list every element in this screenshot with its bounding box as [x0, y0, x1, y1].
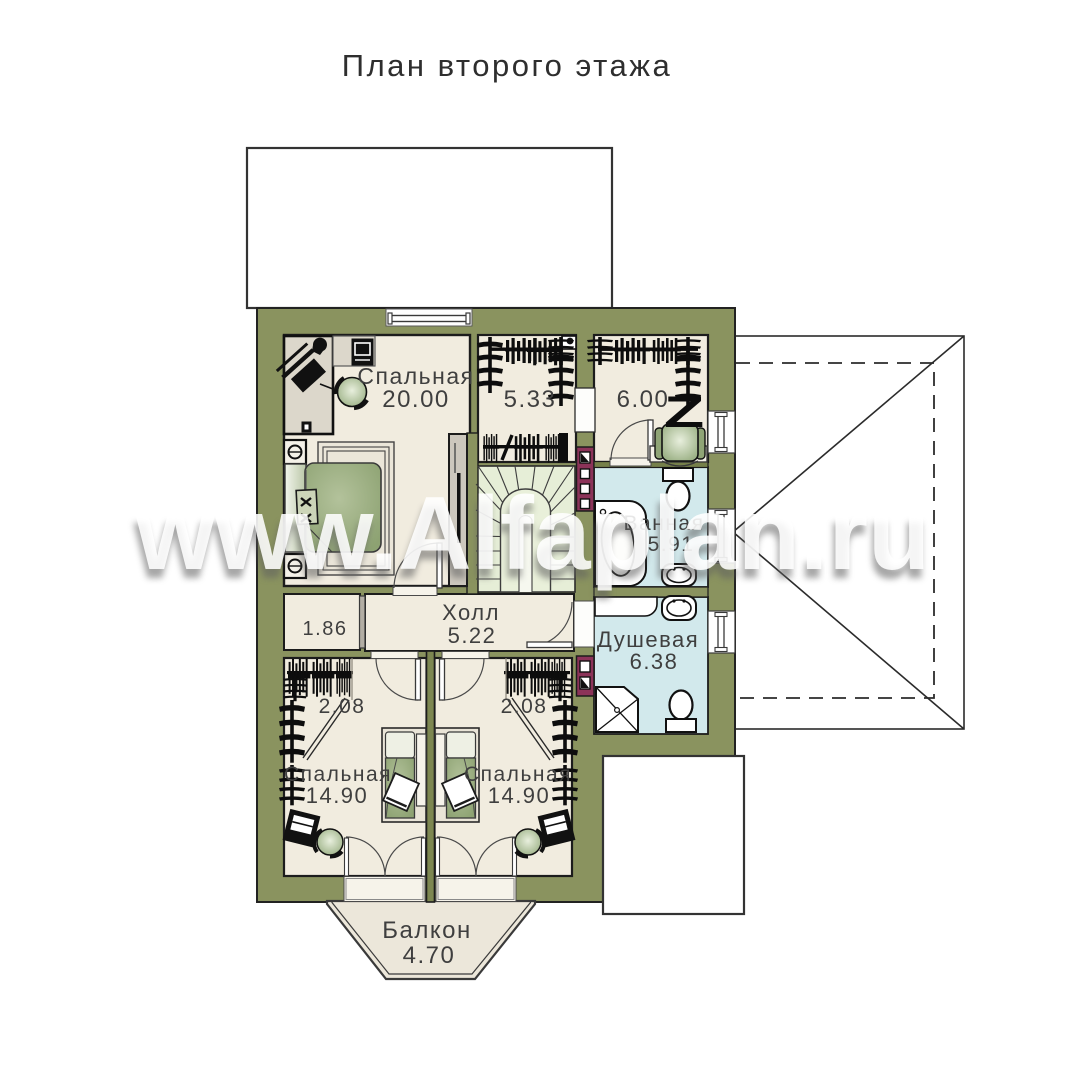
svg-text:Балкон: Балкон — [382, 917, 471, 944]
svg-text:Холл: Холл — [442, 600, 500, 625]
svg-text:14.90: 14.90 — [306, 783, 369, 808]
svg-text:14.90: 14.90 — [488, 783, 551, 808]
svg-text:6.38: 6.38 — [630, 649, 679, 674]
svg-text:5.22: 5.22 — [448, 623, 497, 648]
svg-text:2.08: 2.08 — [501, 695, 548, 718]
svg-text:www.Alfaplan.ru: www.Alfaplan.ru — [135, 475, 931, 591]
svg-text:2.08: 2.08 — [319, 695, 366, 718]
svg-text:4.70: 4.70 — [403, 942, 456, 969]
svg-text:Z: Z — [664, 387, 704, 437]
svg-text:1.86: 1.86 — [303, 618, 348, 640]
svg-text:План второго этажа: План второго этажа — [342, 48, 672, 83]
svg-text:20.00: 20.00 — [382, 386, 450, 413]
svg-text:6.00: 6.00 — [617, 386, 670, 413]
svg-text:5.33: 5.33 — [504, 386, 557, 413]
